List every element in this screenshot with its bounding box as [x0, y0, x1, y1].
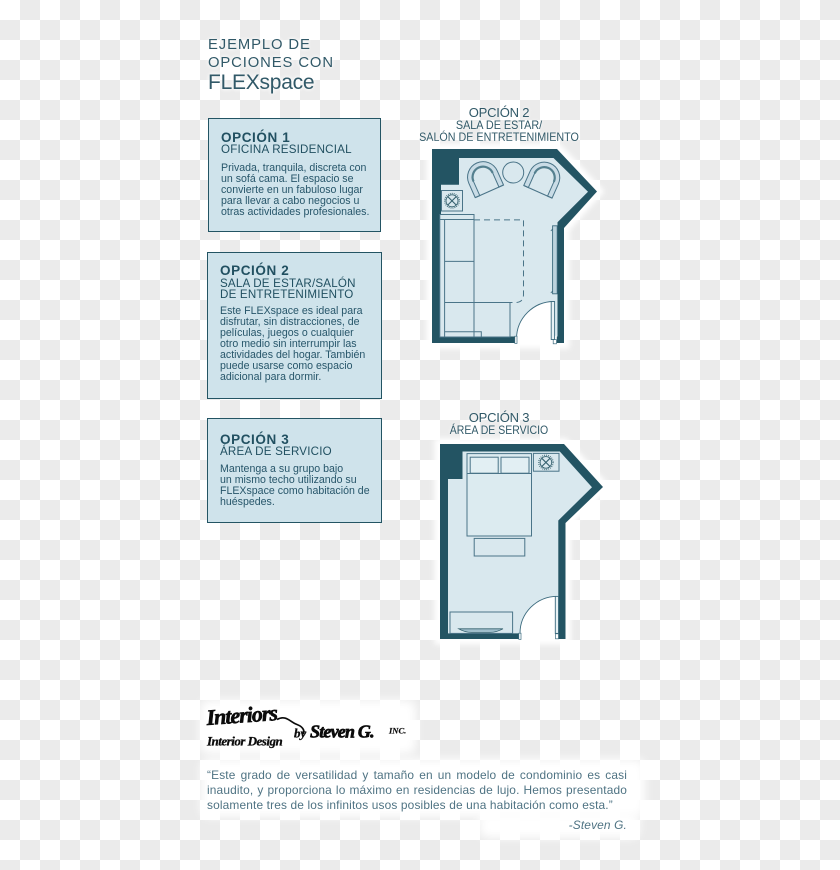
svg-text:Interior Design: Interior Design [206, 734, 282, 749]
svg-text:INC.: INC. [388, 726, 406, 736]
svg-text:Interiors: Interiors [205, 700, 278, 730]
svg-text:Steven G.: Steven G. [310, 722, 374, 742]
svg-text:by: by [294, 726, 307, 741]
